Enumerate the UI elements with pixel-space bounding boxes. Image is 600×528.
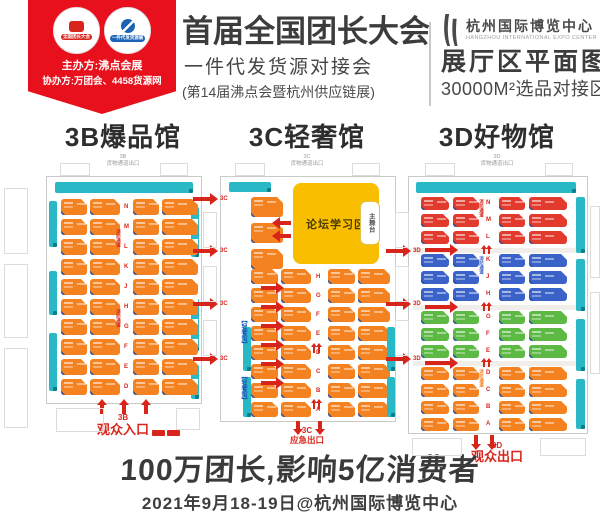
gap-arrow-label: 3C	[220, 196, 228, 202]
direction-arrow-icon	[488, 362, 490, 367]
fire-lane-note: 消防通道	[116, 229, 121, 247]
booth	[281, 269, 311, 284]
aisle-strip	[229, 182, 271, 192]
building-outline	[4, 188, 28, 254]
booth	[453, 401, 479, 414]
building-outline	[545, 163, 573, 176]
fire-lane-note: 消防通道	[116, 309, 121, 327]
booth	[358, 364, 390, 379]
hall-3c-side-label: 【轻奢馆】	[240, 373, 246, 403]
main-stage: 主舞台	[360, 201, 380, 245]
booth	[421, 288, 449, 301]
aisle-letter: F	[486, 331, 490, 337]
building-outline	[203, 266, 217, 302]
aisle-letter: C	[486, 387, 490, 393]
direction-arrow-icon	[488, 249, 490, 254]
aisle-letter: A	[486, 421, 490, 427]
gap-arrow-label: 3C	[220, 301, 228, 307]
aisle-letter: G	[316, 293, 321, 299]
direction-arrow-icon	[279, 234, 291, 238]
booth	[61, 299, 87, 315]
booth	[281, 326, 311, 341]
booth	[61, 359, 87, 375]
venue-name-en: HANGZHOU INTERNATIONAL EXPO CENTER	[466, 35, 597, 41]
gap-arrow-label: 3D	[413, 301, 421, 307]
booth	[421, 345, 449, 358]
booth	[162, 319, 198, 335]
aisle-letter: C	[316, 369, 320, 375]
aisle-strip	[55, 182, 193, 193]
booth	[529, 367, 567, 380]
direction-arrow-icon	[313, 403, 315, 409]
hall-3b-floor: NMLKJHGFED消防通道消防通道	[46, 176, 202, 404]
aisle-letter: K	[124, 264, 128, 270]
main-stage-label: 主舞台	[367, 213, 374, 233]
direction-arrow-icon	[386, 357, 404, 361]
booth	[328, 402, 355, 417]
hall-3b-title: 3B爆品馆	[46, 124, 200, 150]
building-outline	[56, 408, 104, 432]
booth	[328, 383, 355, 398]
expo-center-logo-icon	[441, 14, 461, 46]
booth	[90, 359, 120, 375]
booth	[251, 288, 278, 303]
booth	[453, 311, 479, 324]
footer-slogan: 100万团长,影响5亿消费者	[0, 456, 600, 486]
booth	[162, 379, 198, 395]
booth	[251, 364, 278, 379]
booth	[453, 328, 479, 341]
forum-learning-area-label: 论坛学习区	[306, 216, 366, 232]
building-outline	[176, 408, 200, 430]
booth	[421, 214, 449, 227]
booth	[133, 199, 159, 215]
booth	[358, 402, 390, 417]
aisle-letter: F	[316, 312, 320, 318]
booth	[251, 326, 278, 341]
direction-arrow-icon	[313, 347, 315, 353]
booth	[421, 401, 449, 414]
fire-lane-note: 消防通道	[479, 256, 484, 274]
booth	[328, 364, 355, 379]
booth	[133, 259, 159, 275]
booth	[499, 288, 525, 301]
booth	[281, 307, 311, 322]
booth	[133, 339, 159, 355]
aisle-strip	[49, 201, 57, 247]
booth	[453, 197, 479, 210]
building-outline	[352, 163, 380, 176]
building-outline	[235, 163, 265, 176]
aisle-strip	[576, 319, 585, 371]
building-outline	[4, 264, 28, 338]
badge-national-leaders: 全国团长大会	[53, 7, 100, 54]
booth	[358, 326, 390, 341]
page-title: 首届全国团长大会	[182, 16, 430, 47]
building-outline	[590, 206, 600, 278]
booth	[453, 231, 479, 244]
booth	[90, 259, 120, 275]
venue-block: 杭州国际博览中心 HANGZHOU INTERNATIONAL EXPO CEN…	[441, 14, 597, 98]
aisle-letter: G	[124, 324, 129, 330]
booth	[328, 307, 355, 322]
poster: 全国团长大会 一件代发货源展 主办方:沸点会展 协办方:万团会、4458货源网 …	[0, 0, 600, 528]
aisle-letter: H	[316, 274, 320, 280]
booth	[529, 384, 567, 397]
booth	[251, 249, 283, 269]
hall-3c-floor: 论坛学习区主舞台HGFEDCBA【轻奢馆】【轻奢馆】	[220, 176, 396, 422]
booth	[421, 197, 449, 210]
booth	[61, 219, 87, 235]
direction-arrow-icon	[261, 362, 277, 366]
hall-3c-side-label: 【轻奢馆】	[240, 317, 246, 347]
booth	[133, 319, 159, 335]
booth	[421, 384, 449, 397]
direction-arrow-icon	[483, 249, 485, 254]
booth	[251, 269, 278, 284]
booth	[358, 288, 390, 303]
direction-arrow-icon	[279, 221, 291, 225]
aisle-letter: H	[124, 304, 128, 310]
booth	[421, 271, 449, 284]
booth	[529, 231, 567, 244]
direction-arrow-icon	[483, 306, 485, 311]
gate-3c-code: 3C	[220, 427, 394, 435]
booth	[90, 379, 120, 395]
booth	[421, 254, 449, 267]
booth	[453, 214, 479, 227]
direction-arrow-icon	[474, 435, 478, 444]
gap-arrow-label: 3C	[220, 356, 228, 362]
booth	[251, 197, 283, 217]
aisle-letter: M	[486, 217, 491, 223]
direction-arrow-icon	[318, 421, 322, 429]
direction-arrow-icon	[425, 361, 451, 365]
aisle-letter: N	[124, 204, 128, 210]
aisle-strip	[576, 259, 585, 311]
booth	[529, 418, 567, 431]
booth	[421, 328, 449, 341]
aisle-strip	[387, 327, 395, 371]
booth	[251, 345, 278, 360]
booth	[421, 231, 449, 244]
aisle-strip	[49, 333, 57, 391]
footer-date: 2021年9月18-19日@杭州国际博览中心	[0, 495, 600, 512]
aisle-letter: K	[486, 257, 490, 263]
co-host-line: 协办方:万团会、4458货源网	[42, 77, 161, 87]
direction-arrow-icon	[193, 302, 211, 306]
booth	[162, 199, 198, 215]
building-outline	[4, 348, 28, 428]
booth	[529, 311, 567, 324]
booth	[453, 367, 479, 380]
booth	[281, 364, 311, 379]
aisle-letter: E	[124, 364, 128, 370]
booth	[90, 279, 120, 295]
aisle-letter: E	[316, 331, 320, 337]
booth	[453, 254, 479, 267]
booth	[90, 199, 120, 215]
badge2-label: 一件代发货源展	[110, 35, 146, 42]
aisle-letter: J	[124, 284, 127, 290]
leaders-emblem-icon	[69, 21, 84, 32]
building-outline	[425, 163, 455, 176]
booth	[328, 269, 355, 284]
direction-arrow-icon	[488, 306, 490, 311]
venue-name-cn: 杭州国际博览中心	[466, 19, 597, 34]
organizer-ribbon: 全国团长大会 一件代发货源展 主办方:沸点会展 协办方:万团会、4458货源网	[28, 0, 176, 114]
direction-arrow-icon	[122, 405, 126, 414]
building-outline	[60, 163, 90, 176]
direction-arrow-icon	[193, 357, 211, 361]
direction-arrow-icon	[318, 403, 320, 409]
booth	[499, 231, 525, 244]
booth	[133, 299, 159, 315]
booth	[251, 307, 278, 322]
direction-arrow-icon	[386, 249, 404, 253]
gate-3c-label: 应急出口	[220, 436, 394, 445]
booth	[61, 239, 87, 255]
booth	[328, 288, 355, 303]
gap-arrow-label: 3C	[220, 248, 228, 254]
aisle-strip	[576, 379, 585, 429]
booth	[453, 288, 479, 301]
booth	[281, 288, 311, 303]
gap-arrow-label: 3D	[413, 248, 421, 254]
booth	[358, 307, 390, 322]
direction-arrow-icon	[490, 435, 494, 444]
booth	[529, 345, 567, 358]
booth	[453, 271, 479, 284]
booth	[281, 345, 311, 360]
booth	[499, 214, 525, 227]
aisle-strip	[387, 377, 395, 417]
booth	[61, 199, 87, 215]
aisle-strip	[49, 271, 57, 315]
aisle-strip	[416, 182, 576, 193]
booth	[358, 269, 390, 284]
gap-arrow-label: 3D	[413, 356, 421, 362]
booth	[499, 384, 525, 397]
booth	[328, 326, 355, 341]
booth	[281, 402, 311, 417]
booth	[61, 339, 87, 355]
aisle-letter: E	[486, 348, 490, 354]
booth	[133, 219, 159, 235]
building-outline	[412, 438, 462, 456]
booth	[529, 254, 567, 267]
booth	[499, 328, 525, 341]
building-outline	[540, 438, 586, 456]
building-outline	[590, 292, 600, 374]
page-subtitle-note: (第14届沸点会暨杭州供应链展)	[182, 85, 375, 99]
booth	[162, 279, 198, 295]
booth	[281, 383, 311, 398]
aisle-letter: N	[486, 200, 490, 206]
direction-arrow-icon	[296, 421, 300, 429]
aisle-strip	[576, 197, 585, 253]
direction-arrow-icon	[261, 305, 277, 309]
booth	[529, 214, 567, 227]
direction-arrow-icon	[425, 305, 451, 309]
badge-consignment-expo: 一件代发货源展	[104, 7, 151, 54]
booth	[529, 401, 567, 414]
booth	[529, 197, 567, 210]
booth	[133, 279, 159, 295]
building-outline	[395, 266, 409, 302]
booth	[499, 401, 525, 414]
booth	[133, 359, 159, 375]
booth	[529, 288, 567, 301]
aisle-letter: B	[486, 404, 490, 410]
booth	[328, 345, 355, 360]
booth	[453, 384, 479, 397]
booth	[90, 339, 120, 355]
booth	[133, 239, 159, 255]
booth	[61, 319, 87, 335]
aisle-letter: D	[124, 384, 128, 390]
booth	[162, 219, 198, 235]
direction-arrow-icon	[425, 248, 451, 252]
entrance-badge	[152, 430, 165, 436]
booth	[162, 359, 198, 375]
hall-3d-title: 3D好物馆	[408, 124, 586, 150]
globe-icon	[121, 19, 135, 33]
booth	[251, 402, 278, 417]
direction-arrow-icon	[261, 381, 277, 385]
booth	[499, 197, 525, 210]
booth	[61, 279, 87, 295]
building-outline	[395, 212, 409, 248]
badge1-label: 全国团长大会	[61, 34, 92, 41]
building-outline	[203, 212, 217, 248]
booth	[358, 383, 390, 398]
booth	[499, 418, 525, 431]
fire-lane-note: 消防通道	[479, 369, 484, 387]
booth	[499, 311, 525, 324]
direction-arrow-icon	[193, 197, 211, 201]
aisle-letter: G	[486, 314, 491, 320]
page-subtitle: 一件代发货源对接会	[184, 58, 373, 77]
logo-badges: 全国团长大会 一件代发货源展	[53, 7, 151, 54]
booth	[421, 418, 449, 431]
direction-arrow-icon	[261, 343, 277, 347]
booth	[499, 345, 525, 358]
aisle-letter: H	[486, 291, 490, 297]
booth	[499, 271, 525, 284]
booth	[421, 311, 449, 324]
booth	[162, 259, 198, 275]
booth	[529, 328, 567, 341]
fire-lane-note: 消防通道	[479, 199, 484, 217]
direction-arrow-icon	[483, 362, 485, 367]
aisle-letter: L	[124, 244, 128, 250]
host-line: 主办方:沸点会展	[62, 61, 143, 72]
building-outline	[203, 320, 217, 356]
booth	[251, 383, 278, 398]
venue-area-line: 30000M²选品对接区	[441, 80, 597, 98]
aisle-letter: J	[486, 274, 489, 280]
aisle-letter: L	[486, 234, 490, 240]
aisle-letter: M	[124, 224, 129, 230]
aisle-letter: B	[316, 388, 320, 394]
direction-arrow-icon	[193, 249, 211, 253]
direction-arrow-icon	[144, 405, 148, 414]
direction-arrow-icon	[261, 286, 277, 290]
building-outline	[395, 320, 409, 356]
booth	[61, 259, 87, 275]
entrance-badge	[167, 430, 180, 436]
booth	[421, 367, 449, 380]
building-outline	[160, 163, 188, 176]
booth	[499, 254, 525, 267]
booth	[61, 379, 87, 395]
booth	[499, 367, 525, 380]
booth	[453, 418, 479, 431]
aisle-letter: D	[486, 370, 490, 376]
hall-3d-floor: NMLKJHGFEDCBA消防通道消防通道消防通道	[408, 176, 588, 434]
direction-arrow-icon	[386, 302, 404, 306]
direction-arrow-icon	[318, 347, 320, 353]
header-divider	[429, 22, 431, 106]
hall-3c-title: 3C轻奢馆	[220, 124, 394, 150]
venue-map-title: 展厅区平面图	[441, 50, 597, 75]
booth	[133, 379, 159, 395]
direction-arrow-icon	[261, 324, 277, 328]
booth	[162, 339, 198, 355]
aisle-letter: F	[124, 344, 128, 350]
booth	[529, 271, 567, 284]
